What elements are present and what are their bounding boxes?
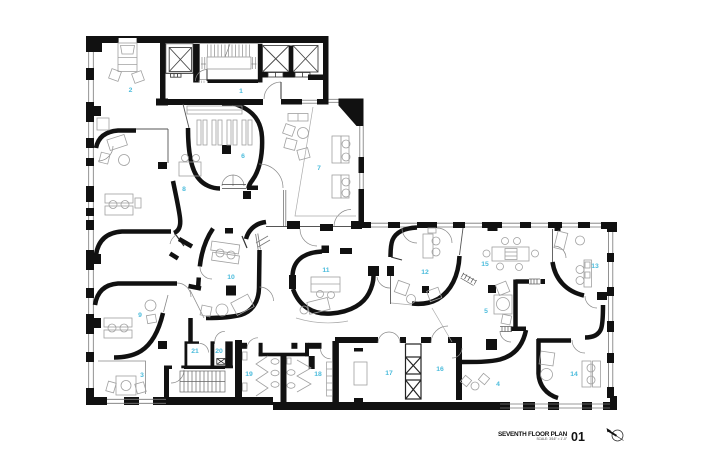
svg-text:4: 4 <box>496 381 500 388</box>
svg-text:10: 10 <box>227 274 235 281</box>
svg-text:13: 13 <box>591 263 599 270</box>
svg-text:12: 12 <box>421 269 429 276</box>
svg-text:19: 19 <box>245 371 253 378</box>
svg-text:6: 6 <box>241 153 245 160</box>
svg-text:3: 3 <box>140 372 144 379</box>
svg-text:8: 8 <box>182 186 186 193</box>
svg-text:2: 2 <box>129 87 133 94</box>
svg-text:5: 5 <box>484 308 488 315</box>
svg-text:17: 17 <box>385 370 393 377</box>
svg-text:9: 9 <box>138 312 142 319</box>
svg-text:01: 01 <box>571 430 585 444</box>
svg-text:16: 16 <box>436 366 444 373</box>
svg-text:15: 15 <box>481 261 489 268</box>
svg-text:14: 14 <box>570 371 578 378</box>
svg-text:1: 1 <box>239 88 243 95</box>
svg-text:21: 21 <box>191 348 199 355</box>
svg-text:7: 7 <box>317 165 321 172</box>
svg-text:18: 18 <box>314 371 322 378</box>
svg-text:11: 11 <box>322 267 329 274</box>
svg-text:20: 20 <box>215 348 223 355</box>
svg-text:SCALE: 3/16" = 1'-0": SCALE: 3/16" = 1'-0" <box>536 437 567 441</box>
